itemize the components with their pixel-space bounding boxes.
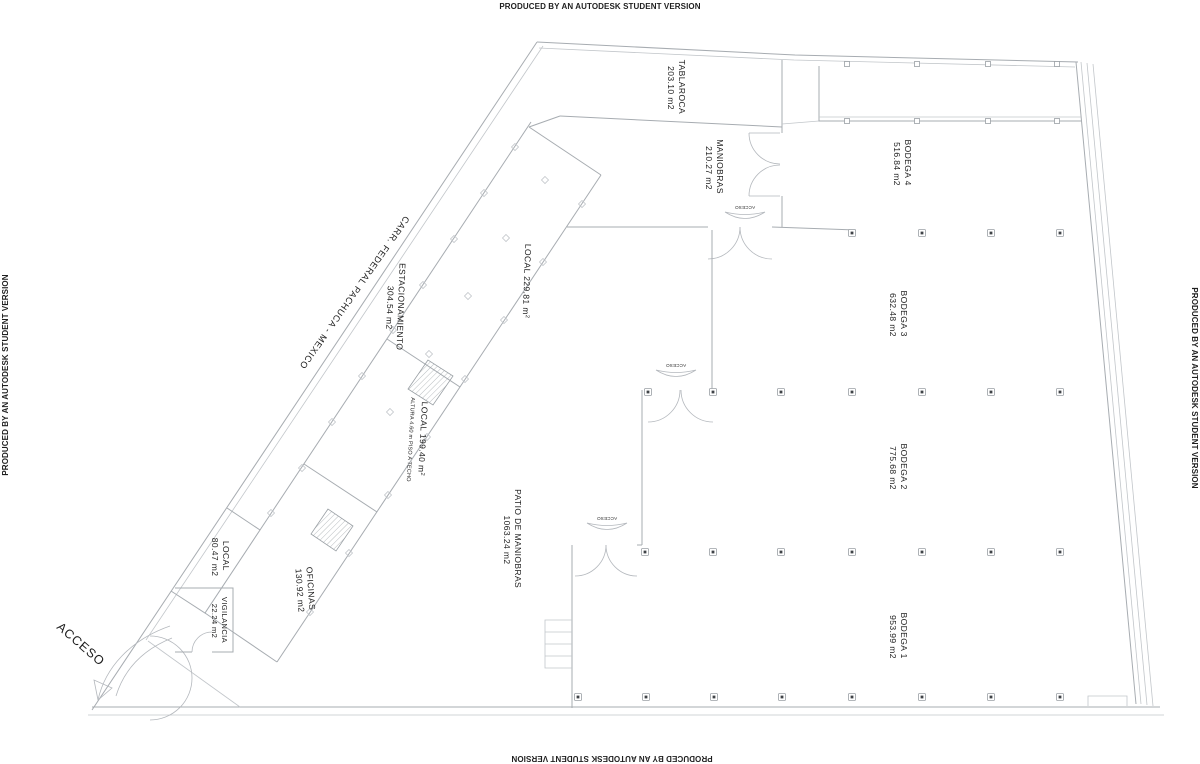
label-bodega-4: BODEGA 4 516.84 m2	[892, 140, 913, 189]
label-oficinas: OFICINAS 130.92 m2	[293, 566, 317, 613]
watermark-right: PRODUCED BY AN AUTODESK STUDENT VERSION	[1190, 287, 1199, 488]
local-band	[171, 116, 601, 662]
label-vigilancia: VIGILANCIA 22.24 m2	[210, 597, 229, 645]
svg-text:ACCESO: ACCESO	[597, 516, 618, 521]
watermark-top: PRODUCED BY AN AUTODESK STUDENT VERSION	[499, 2, 700, 11]
door-label-bodega3: ACCESO	[656, 363, 696, 377]
label-local-199: LOCAL 199.40 m2 ALTURA 4.60 m PISO A TEC…	[405, 397, 433, 483]
site-boundary	[88, 42, 1164, 715]
label-local-229: LOCAL 229.81 m2	[521, 244, 534, 319]
bodega-block	[545, 62, 1081, 709]
floor-plan-page: TABLAROCA 203.10 m2 MANIOBRAS 210.27 m2 …	[0, 0, 1200, 764]
door-label-maniobras: ACCESO	[725, 205, 765, 219]
label-bodega-3: BODEGA 3 632.48 m2	[888, 291, 909, 340]
label-bodega-2: BODEGA 2 775.68 m2	[888, 444, 909, 493]
label-estacionamiento: ESTACIONAMIENTO 304.54 m2	[383, 262, 407, 353]
label-acceso-entrance: ACCESO	[54, 620, 108, 669]
floor-plan-canvas: TABLAROCA 203.10 m2 MANIOBRAS 210.27 m2 …	[0, 0, 1200, 764]
label-local-80: LOCAL 80.47 m2	[210, 538, 231, 577]
label-patio: PATIO DE MANIOBRAS 1063.24 m2	[502, 489, 523, 591]
door-label-bodega1: ACCESO	[587, 516, 627, 530]
entrance	[94, 626, 240, 720]
svg-text:ACCESO: ACCESO	[666, 363, 687, 368]
label-bodega-1: BODEGA 1 953.99 m2	[888, 613, 909, 662]
label-maniobras: MANIOBRAS 210.27 m2	[704, 139, 725, 196]
svg-text:ACCESO: ACCESO	[735, 205, 756, 210]
watermark-left: PRODUCED BY AN AUTODESK STUDENT VERSION	[1, 274, 10, 475]
column-grid	[575, 230, 1064, 701]
label-tablaroca: TABLAROCA 203.10 m2	[666, 60, 687, 117]
stair-oficinas	[311, 509, 353, 551]
watermark-bottom: PRODUCED BY AN AUTODESK STUDENT VERSION	[511, 754, 712, 763]
